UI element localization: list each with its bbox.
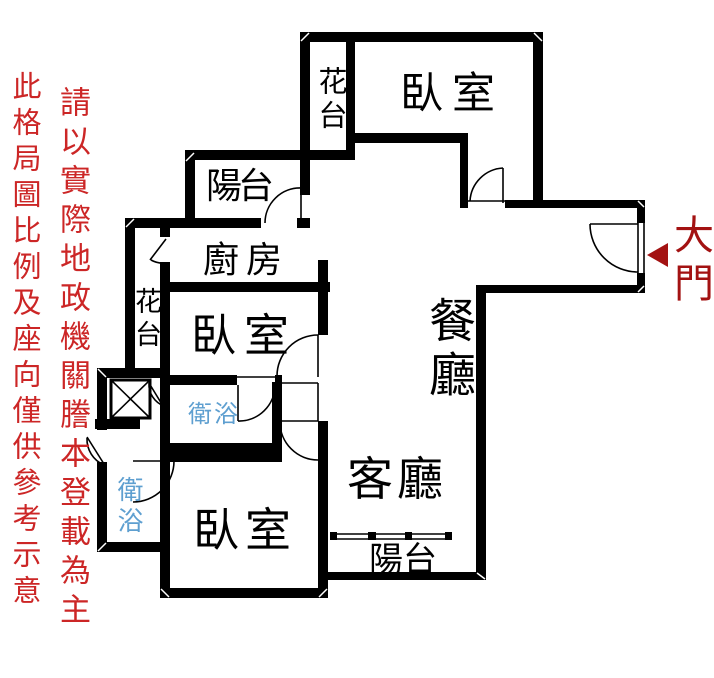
disclaimer-line-1: 此格局圖比例及座向僅供參考示意 xyxy=(10,71,39,611)
room-label-bathroom-upper: 衛浴 xyxy=(188,402,240,426)
room-label-bedroom-top: 臥室 xyxy=(400,73,504,116)
sliding-door xyxy=(330,532,452,540)
room-label-flower-bed-top: 花台 xyxy=(316,66,345,134)
floor-plan: 此格局圖比例及座向僅供參考示意 請以實際地政機關謄本登載為主 大門 臥室 花台 … xyxy=(0,0,714,678)
walls xyxy=(95,32,645,598)
room-label-kitchen: 廚房 xyxy=(203,243,289,279)
room-label-bedroom-middle: 臥室 xyxy=(191,313,297,358)
main-door-label: 大門 xyxy=(670,214,710,310)
room-label-dining: 餐廳 xyxy=(424,296,471,404)
floor-plan-drawing xyxy=(0,0,714,678)
room-label-balcony-top: 陽台 xyxy=(206,169,270,205)
disclaimer-line-2: 請以實際地政機關謄本登載為主 xyxy=(56,86,87,632)
room-label-bedroom-bottom: 臥室 xyxy=(193,507,297,553)
room-label-flower-bed-left: 花台 xyxy=(132,287,159,353)
room-label-bathroom-lower: 衛浴 xyxy=(115,476,141,538)
corner-miters xyxy=(98,33,644,597)
entrance-arrow-icon xyxy=(647,243,668,267)
room-label-living: 客廳 xyxy=(347,456,447,502)
elevator-icon xyxy=(111,380,150,418)
room-label-balcony-bottom: 陽台 xyxy=(369,543,437,577)
